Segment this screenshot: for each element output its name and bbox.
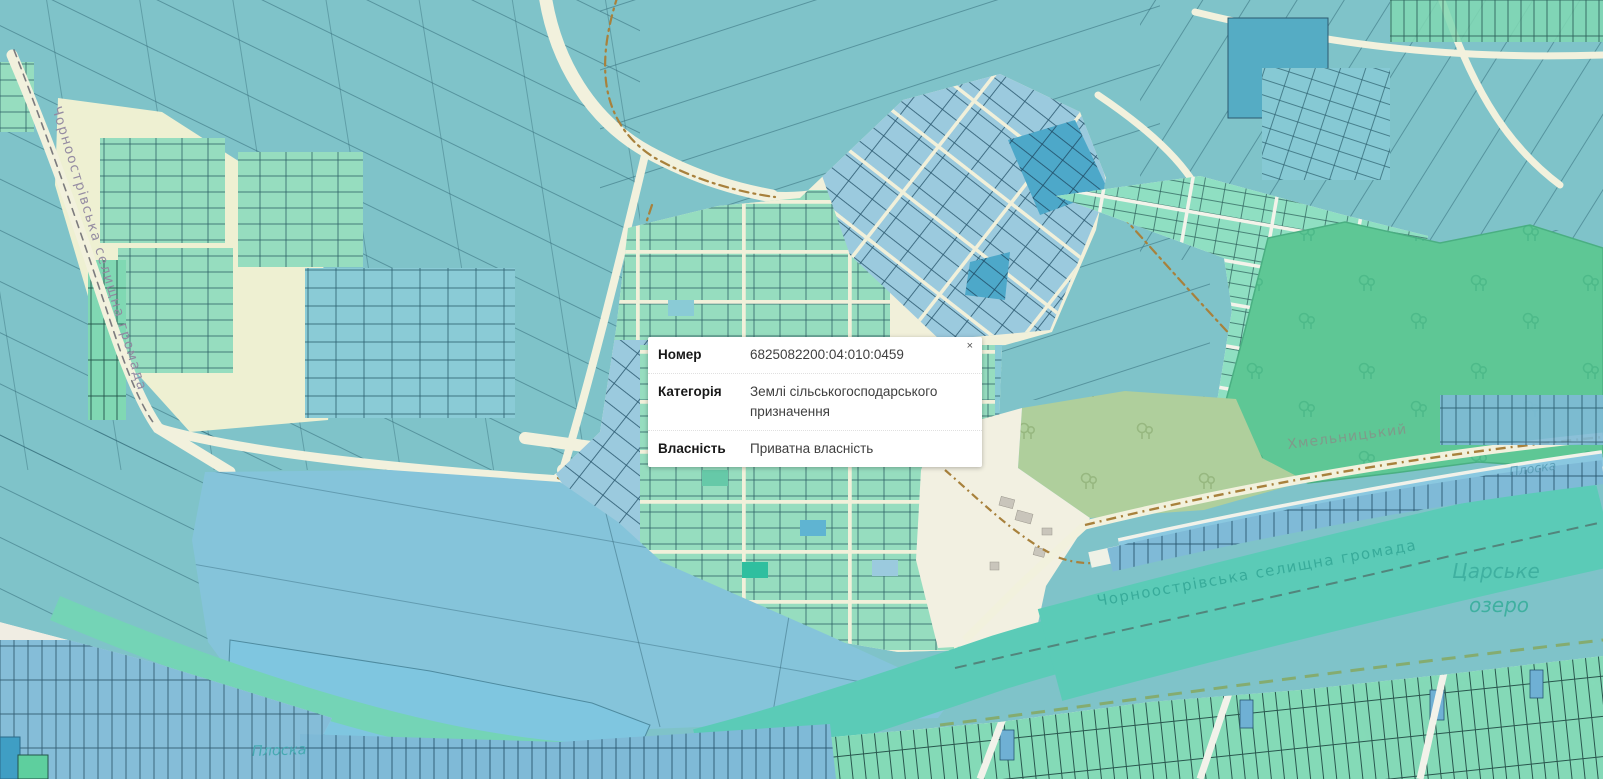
popup-value-parcel-number: 6825082200:04:010:0459 [750, 345, 968, 365]
popup-label-number: Номер [658, 345, 750, 365]
info-popup: × Номер 6825082200:04:010:0459 Категорія… [648, 337, 982, 467]
label-lake-line2: озеро [1469, 593, 1529, 617]
forest [1215, 215, 1603, 490]
popup-row-ownership: Власність Приватна власність [648, 430, 982, 467]
map-viewport[interactable]: Чорноострівська селищна громада Чорноост… [0, 0, 1603, 779]
popup-value-category: Землі сільськогосподарського призначення [750, 382, 968, 422]
popup-label-category: Категорія [658, 382, 750, 422]
popup-value-ownership: Приватна власність [750, 439, 968, 459]
close-icon[interactable]: × [967, 340, 973, 352]
popup-label-ownership: Власність [658, 439, 750, 459]
popup-row-number: Номер 6825082200:04:010:0459 [648, 337, 982, 373]
label-lake-line1: Царське [1452, 559, 1540, 583]
label-river-bottom: Плоска [252, 742, 307, 760]
popup-row-category: Категорія Землі сільськогосподарського п… [648, 373, 982, 430]
